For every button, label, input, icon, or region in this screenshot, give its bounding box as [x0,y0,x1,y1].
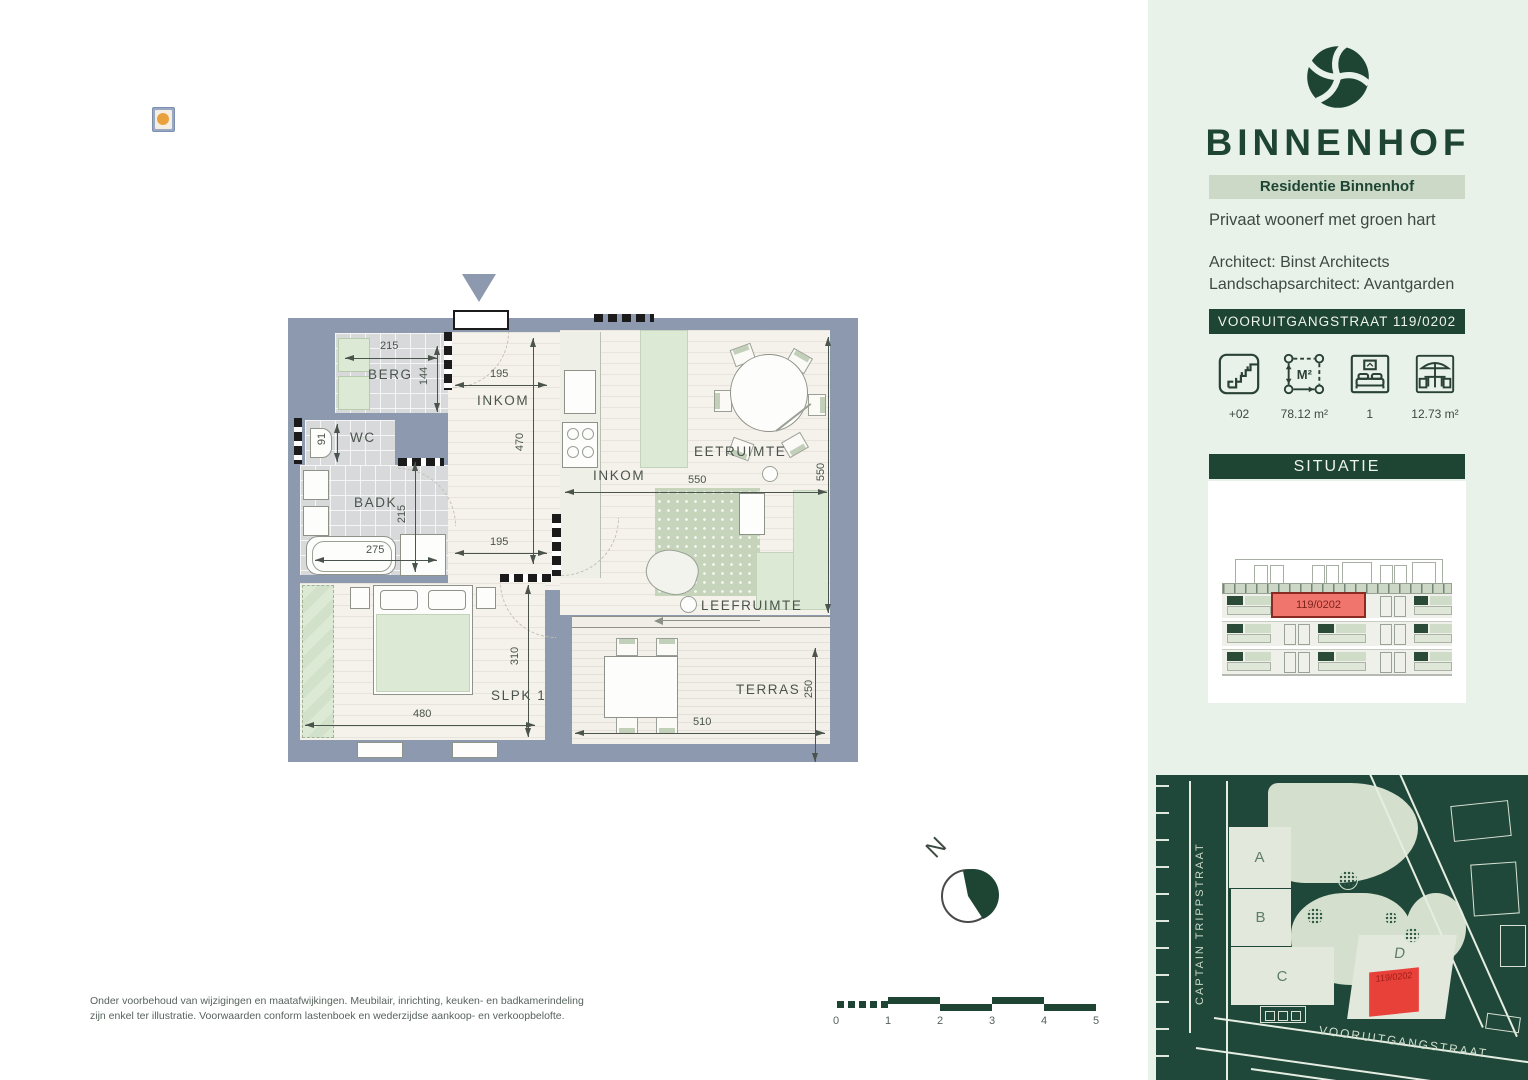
disclaimer-line-2: zijn enkel ter illustratie. Voorwaarden … [90,1009,590,1024]
street-label-bottom: VOORUITGANGSTRAAT [1318,1023,1489,1061]
site-map: CAPTAIN TRIPPSTRAAT VOORUITGANGSTRAAT A … [1156,775,1528,1080]
building-d-label: D [1393,945,1407,962]
street-label-left: CAPTAIN TRIPPSTRAAT [1194,825,1206,1005]
building-a: A [1229,827,1291,888]
door-frame [398,458,444,466]
entrance-door [453,310,509,330]
residence-band: Residentie Binnenhof [1209,175,1465,199]
building-b-label: B [1255,909,1266,926]
dim-label: 310 [509,647,521,665]
binnenhof-logo-icon [1303,40,1373,114]
bedroom-icon [1347,350,1393,398]
kitchen-island [640,330,688,468]
dim-label: 250 [803,680,815,698]
scale-tick: 2 [937,1015,943,1027]
scale-tick: 5 [1093,1015,1099,1027]
area-glyph: M² [1297,367,1312,382]
dim-line [415,462,416,572]
terrace-table [604,656,678,718]
door-frame [500,574,552,582]
dim-label: 215 [380,340,398,352]
dim-label: 275 [366,544,384,556]
scale-tick: 0 [833,1015,839,1027]
room-label-eetruimte: EETRUIMTE [694,444,786,459]
situatie-header: SITUATIE [1209,454,1465,479]
shower [400,534,446,576]
map-unit-highlight: 119/0202 [1369,967,1419,1016]
coffee-table [739,493,765,535]
sliding-arrow-head [654,617,663,625]
dim-label: 510 [693,716,711,728]
stat-bedrooms: 1 [1338,350,1402,421]
terrace-chair [616,638,638,656]
dim-label: 550 [815,463,827,481]
storage-unit [338,338,370,372]
scale-tick: 3 [989,1015,995,1027]
room-label-berg: BERG [368,367,413,382]
floor-plan: BERG WC BADK INKOM INKOM EETRUIMTE LEEFR… [288,318,858,762]
brochure-page: BERG WC BADK INKOM INKOM EETRUIMTE LEEFR… [0,0,1528,1080]
dim-line [528,585,529,737]
nightstand [476,587,496,609]
door-frame [552,514,561,576]
pillow [428,590,466,610]
wardrobe [302,585,334,738]
stat-area: M² 78.12 m² [1272,350,1336,421]
tree-icon [1306,907,1324,925]
dim-label: 215 [396,505,408,523]
north-compass: N [920,832,1010,957]
room-label-wc: WC [350,430,376,445]
tree-icon [1338,870,1358,890]
north-label: N [921,832,953,864]
dim-label: 195 [490,368,508,380]
stairs-icon [1216,350,1262,398]
tree-icon [1384,911,1398,925]
tagline: Privaat woonerf met groen hart [1209,211,1436,230]
door-frame [594,314,654,322]
dining-chair [808,394,826,416]
dim-line [575,733,825,734]
terrace-icon [1412,350,1458,398]
stat-terrace-value: 12.73 m² [1403,407,1467,421]
door-frame [444,332,452,390]
elevation-floor-row [1222,622,1452,649]
brand-title: BINNENHOF [1148,122,1528,164]
dim-line [437,346,438,412]
stove [562,422,598,468]
dim-line [315,560,437,561]
elevation-unit-label: 119/0202 [1296,599,1341,611]
dim-line [345,358,437,359]
sliding-arrow-icon [660,620,760,621]
sliding-window [572,616,830,628]
stat-terrace: 12.73 m² [1403,350,1467,421]
window [357,742,403,758]
dim-label: 470 [514,433,526,451]
dim-line [815,648,816,762]
stove-burner [582,446,594,458]
building-c: C [1231,947,1334,1005]
building-a-label: A [1254,849,1265,866]
dim-label: 550 [688,474,706,486]
dim-label: 195 [490,536,508,548]
door-frame [294,418,302,464]
stove-burner [582,428,594,440]
dim-label: 144 [418,367,430,385]
dim-line [455,553,547,554]
storage-unit [338,376,370,410]
disclaimer-line-1: Onder voorbehoud van wijzigingen en maat… [90,994,590,1009]
washbasin [303,506,329,536]
stove-burner [567,446,579,458]
room-label-slpk: SLPK 1 [491,688,546,703]
side-lamp-icon [680,596,697,613]
kitchen-sink [564,370,596,414]
dim-label: 91 [316,433,328,445]
parking-structure [1260,1006,1306,1023]
nightstand [350,587,370,609]
stove-burner [567,428,579,440]
terrace-chair [656,638,678,656]
terrace-chair [656,716,678,734]
room-label-badk: BADK [354,495,397,510]
room-label-leefruimte: LEEFRUIMTE [701,598,803,613]
window [452,742,498,758]
disclaimer: Onder voorbehoud van wijzigingen en maat… [90,994,590,1024]
elevation-unit-highlight: 119/0202 [1271,592,1366,618]
building-b: B [1231,889,1291,946]
room-label-inkom2: INKOM [593,468,645,483]
dining-table [730,354,808,432]
stats-row: +02 M² 78.12 m² [1207,350,1467,421]
sofa [793,490,829,610]
dim-label: 480 [413,708,431,720]
room-label-inkom: INKOM [477,393,529,408]
scale-bar: 0 1 2 3 4 5 [828,993,1108,1029]
stat-floor: +02 [1207,350,1271,421]
duvet [376,614,470,692]
address-banner: VOORUITGANGSTRAAT 119/0202 [1209,309,1465,334]
building-c-label: C [1277,968,1289,985]
dim-line [337,424,338,462]
stat-area-value: 78.12 m² [1272,407,1336,421]
stat-floor-value: +02 [1207,407,1271,421]
dim-line [305,725,535,726]
architect-line: Architect: Binst Architects [1209,254,1390,272]
situatie-panel: 119/0202 [1208,481,1466,703]
elevation-floor-row [1222,650,1452,676]
room-label-terras: TERRAS [736,682,800,697]
scale-tick: 1 [885,1015,891,1027]
scale-tick: 4 [1041,1015,1047,1027]
landscape-line: Landschapsarchitect: Avantgarden [1209,276,1454,294]
entrance-marker-icon [462,274,496,302]
quality-stamp-icon [152,107,175,132]
map-unit-label: 119/0202 [1376,970,1413,984]
dim-line [828,337,829,613]
stat-bedrooms-value: 1 [1338,407,1402,421]
pillow [380,590,418,610]
terrace-chair [616,716,638,734]
dim-line [533,338,534,564]
floor-lamp-icon [762,466,778,482]
tree-icon [1404,927,1420,943]
dim-line [565,492,827,493]
washbasin [303,470,329,500]
compass-icon [936,864,1000,928]
